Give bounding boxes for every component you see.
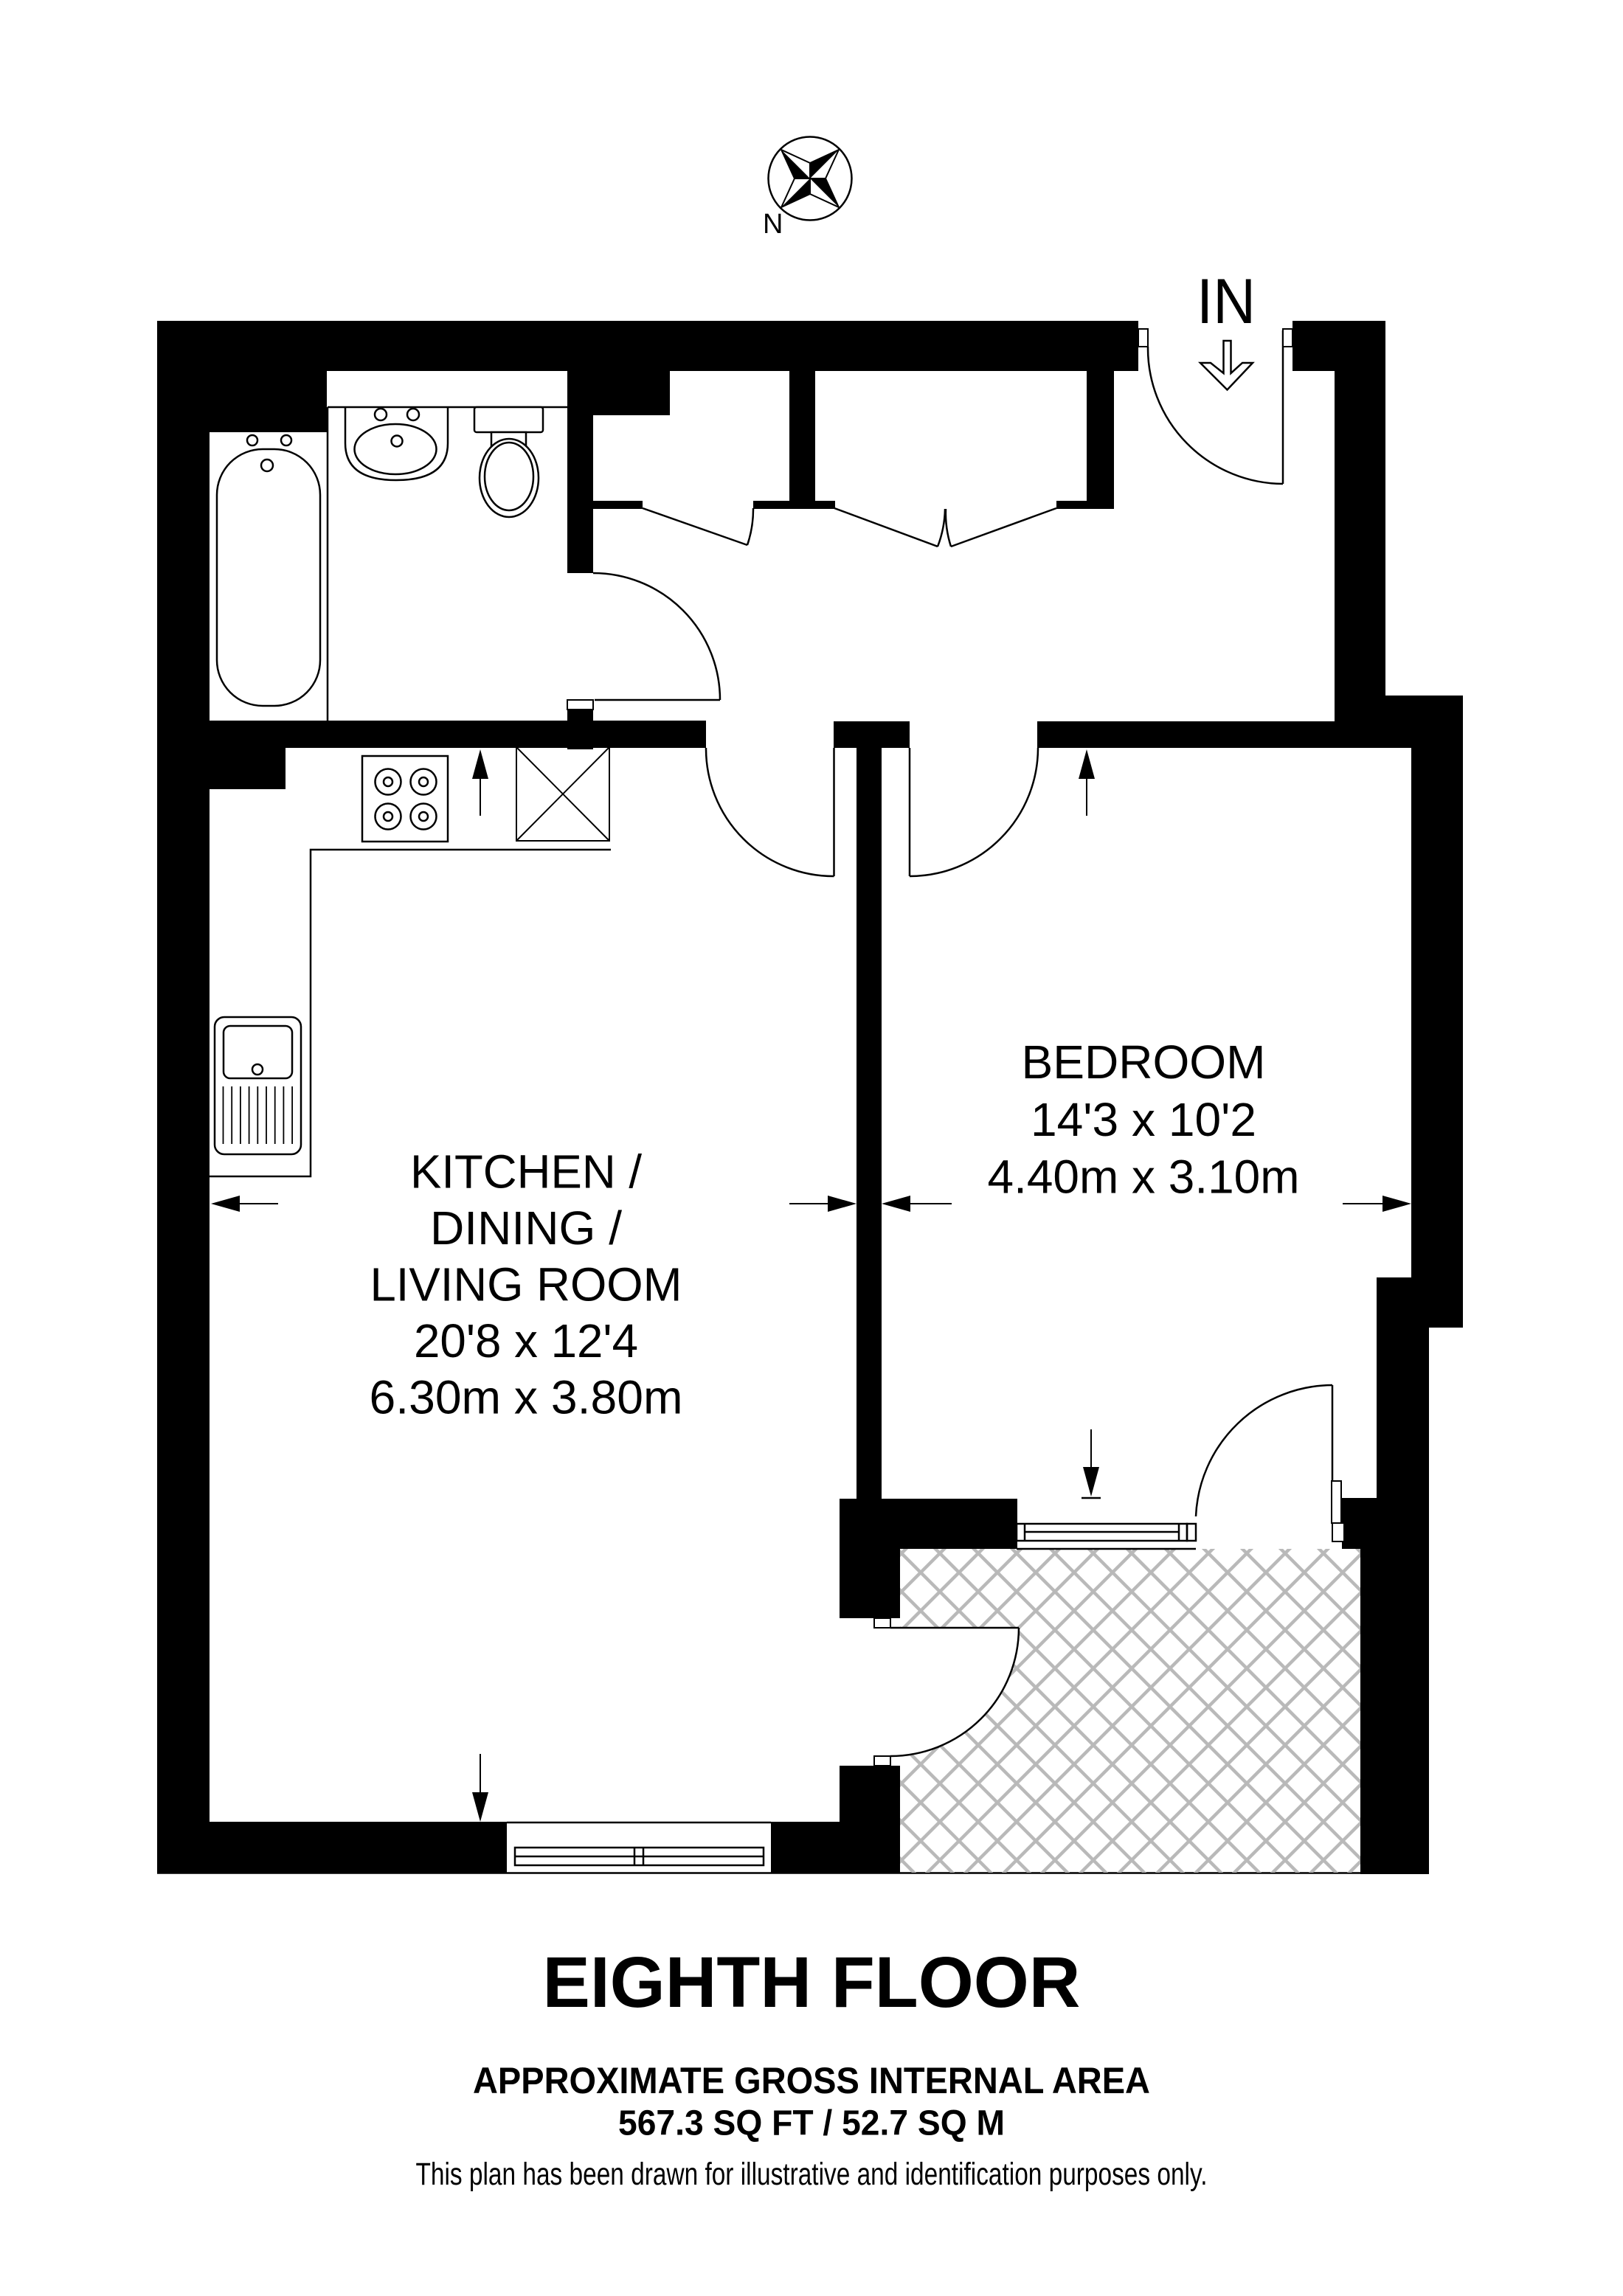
svg-text:20'8 x 12'4: 20'8 x 12'4 [414,1314,638,1367]
svg-text:IN: IN [1197,266,1256,337]
svg-text:This plan has been drawn for i: This plan has been drawn for illustrativ… [416,2157,1208,2192]
svg-text:APPROXIMATE GROSS INTERNAL ARE: APPROXIMATE GROSS INTERNAL AREA [473,2060,1150,2101]
svg-text:N: N [763,209,783,240]
svg-text:6.30m x 3.80m: 6.30m x 3.80m [370,1371,683,1424]
svg-text:LIVING ROOM: LIVING ROOM [370,1258,682,1311]
svg-text:567.3 SQ FT / 52.7 SQ M: 567.3 SQ FT / 52.7 SQ M [618,2104,1005,2143]
svg-text:BEDROOM: BEDROOM [1022,1036,1266,1089]
svg-text:EIGHTH FLOOR: EIGHTH FLOOR [543,1942,1081,2022]
svg-text:KITCHEN /: KITCHEN / [410,1145,642,1199]
svg-text:4.40m x 3.10m: 4.40m x 3.10m [988,1151,1300,1204]
svg-text:DINING /: DINING / [430,1201,622,1255]
svg-text:14'3 x 10'2: 14'3 x 10'2 [1031,1093,1256,1146]
